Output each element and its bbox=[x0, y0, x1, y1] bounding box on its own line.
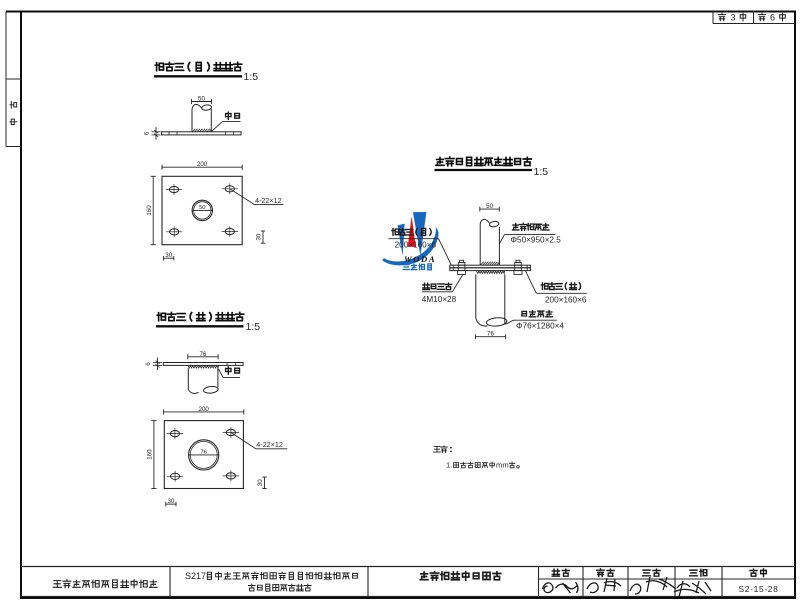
svg-text:1:5: 1:5 bbox=[246, 321, 261, 333]
svg-text:S217: S217 bbox=[185, 571, 206, 581]
svg-text:1:5: 1:5 bbox=[244, 71, 259, 83]
svg-text:200×160×6: 200×160×6 bbox=[395, 240, 437, 249]
svg-text:30: 30 bbox=[165, 252, 172, 259]
svg-text:6: 6 bbox=[143, 131, 150, 135]
svg-text:160: 160 bbox=[147, 449, 154, 460]
svg-text:160: 160 bbox=[146, 205, 153, 216]
svg-text:S2-15-28: S2-15-28 bbox=[738, 584, 778, 594]
svg-text:mm: mm bbox=[496, 461, 509, 470]
svg-text:1.: 1. bbox=[446, 461, 452, 470]
svg-text:WODA: WODA bbox=[404, 254, 436, 264]
svg-text:50: 50 bbox=[198, 96, 205, 103]
svg-text:Φ50×950×2.5: Φ50×950×2.5 bbox=[511, 236, 562, 245]
svg-text:1:5: 1:5 bbox=[534, 166, 549, 178]
svg-text:50: 50 bbox=[199, 205, 205, 211]
svg-text:30: 30 bbox=[257, 479, 264, 486]
svg-text:30: 30 bbox=[167, 498, 174, 505]
svg-text:50: 50 bbox=[486, 203, 493, 210]
svg-text:6: 6 bbox=[770, 13, 775, 23]
svg-text:76: 76 bbox=[200, 449, 206, 455]
svg-text:6: 6 bbox=[145, 362, 152, 366]
svg-text:30: 30 bbox=[256, 233, 263, 240]
svg-text:200: 200 bbox=[197, 161, 208, 168]
svg-text:76: 76 bbox=[199, 351, 206, 358]
svg-text:200×160×6: 200×160×6 bbox=[545, 295, 587, 304]
svg-text:4-22×12: 4-22×12 bbox=[255, 196, 282, 205]
svg-text:3: 3 bbox=[730, 13, 735, 23]
svg-text:4M10×28: 4M10×28 bbox=[422, 295, 457, 304]
svg-text:4-22×12: 4-22×12 bbox=[256, 440, 283, 449]
svg-text:200: 200 bbox=[199, 406, 210, 413]
svg-text:76: 76 bbox=[487, 331, 494, 338]
svg-text:Φ76×1280×4: Φ76×1280×4 bbox=[516, 322, 564, 331]
